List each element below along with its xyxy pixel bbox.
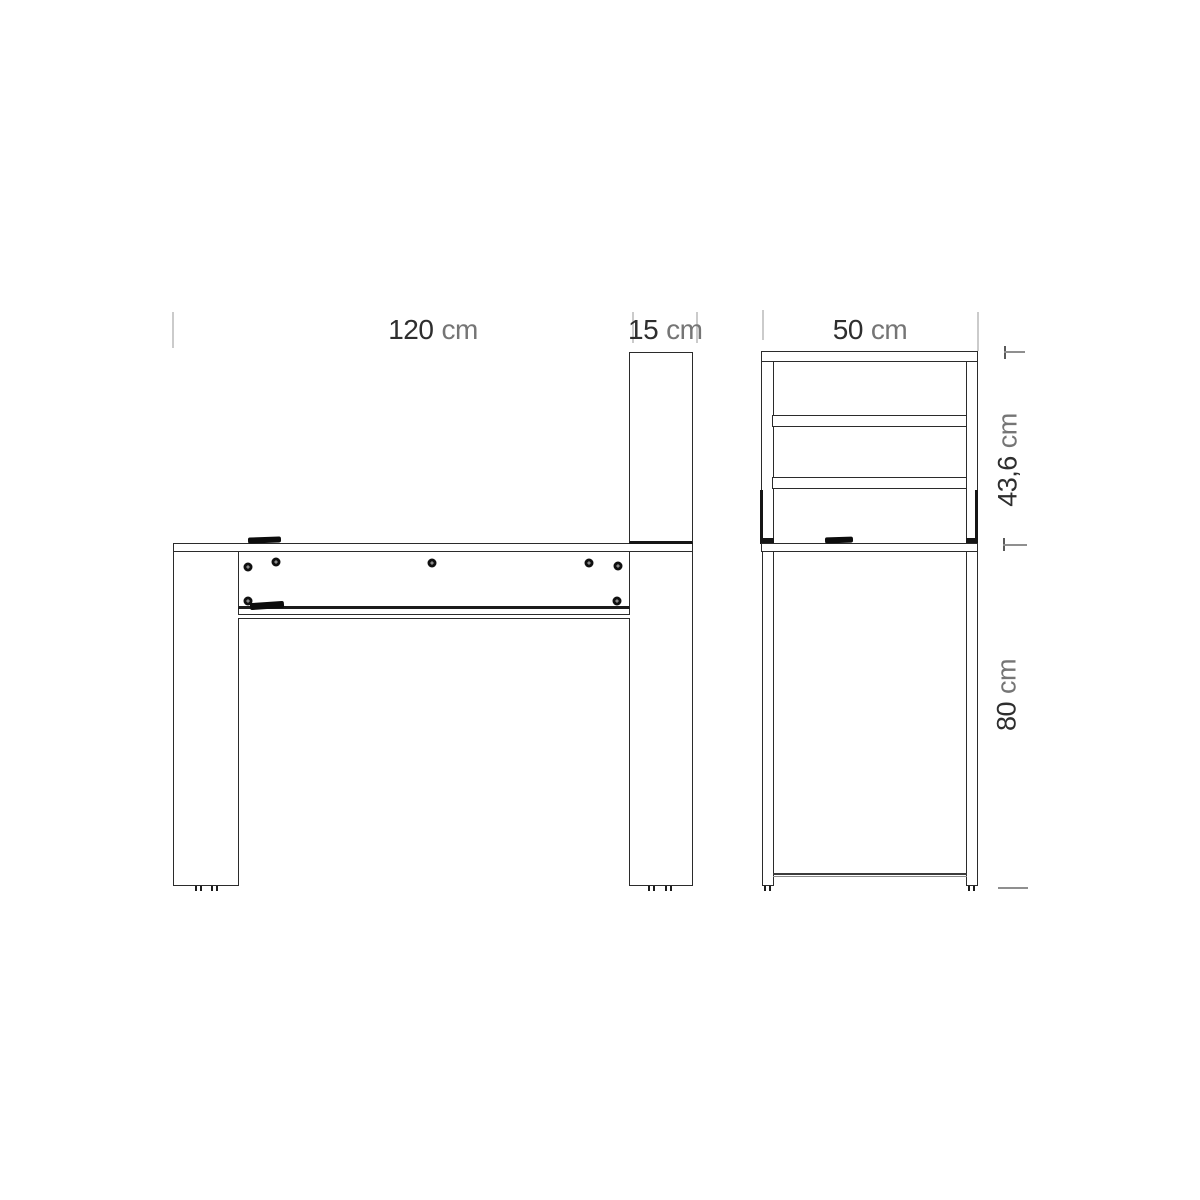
panel-seam: [760, 490, 763, 544]
foot-glide: [211, 886, 213, 891]
dim-desk-depth-label: 50cm: [810, 316, 930, 344]
dim-unit: cm: [871, 314, 907, 345]
screw-icon: [613, 597, 622, 606]
dim-desk-height-label: 80cm: [994, 659, 1021, 731]
dim-value: 15: [628, 314, 658, 345]
screw-icon: [614, 562, 623, 571]
dim-unit: cm: [992, 659, 1022, 694]
dim-value: 80: [992, 702, 1022, 731]
side-front-panel: [762, 551, 774, 886]
dim-unit: cm: [441, 314, 477, 345]
dimension-mark: [998, 887, 1028, 889]
dimension-drawing: 120cm 15cm 50cm 43,6cm 80cm: [0, 0, 1200, 1200]
dim-unit: cm: [666, 314, 702, 345]
foot-glide: [195, 886, 197, 891]
screw-icon: [244, 563, 253, 572]
dimension-mark: [1004, 351, 1025, 353]
bracket-icon: [248, 536, 281, 543]
front-side-column: [629, 352, 693, 544]
extension-tick: [172, 312, 174, 348]
foot-glide: [200, 886, 202, 891]
foot-glide: [653, 886, 655, 891]
foot-glide: [665, 886, 667, 891]
dim-unit: cm: [993, 413, 1023, 448]
side-shelf-upper: [772, 415, 967, 427]
foot-glide: [648, 886, 650, 891]
dim-value: 50: [833, 314, 863, 345]
front-left-leg: [173, 551, 239, 886]
foot-glide: [764, 886, 766, 891]
front-right-leg: [629, 551, 693, 886]
foot-glide: [769, 886, 771, 891]
dim-desk-width-label: 120cm: [373, 316, 493, 344]
foot-glide: [670, 886, 672, 891]
side-shelf-lower: [772, 477, 967, 489]
dim-hutch-height-label: 43,6cm: [995, 413, 1022, 507]
foot-glide: [973, 886, 975, 891]
extension-tick: [977, 312, 979, 351]
side-back-panel: [966, 551, 978, 886]
dim-value: 43,6: [993, 456, 1023, 507]
side-desktop: [761, 543, 978, 552]
screw-icon: [428, 559, 437, 568]
dim-value: 120: [388, 314, 433, 345]
side-bottom-rail: [773, 873, 967, 877]
dim-column-width-label: 15cm: [628, 316, 700, 344]
dimension-mark: [1003, 544, 1027, 546]
front-lower-rail: [238, 614, 630, 619]
screw-icon: [585, 559, 594, 568]
screw-icon: [272, 558, 281, 567]
foot-glide: [216, 886, 218, 891]
bracket-icon: [825, 537, 853, 544]
extension-tick: [762, 310, 764, 340]
foot-glide: [968, 886, 970, 891]
panel-seam: [975, 490, 978, 544]
side-hutch-top-panel: [761, 351, 978, 362]
